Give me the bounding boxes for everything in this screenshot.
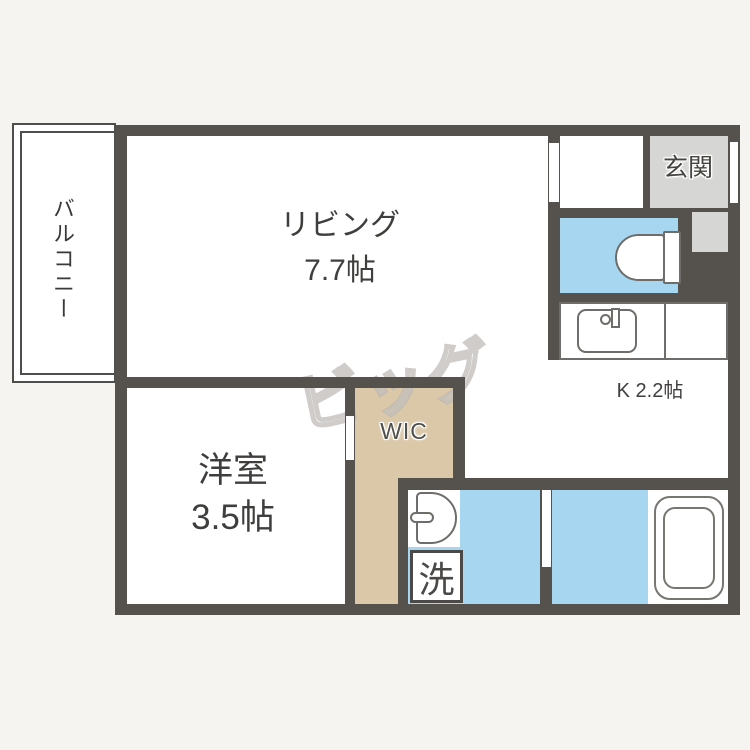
living-room-name: リビング bbox=[240, 203, 440, 248]
laundry-label: 洗 bbox=[418, 551, 454, 603]
wall-sanitary-top bbox=[398, 478, 740, 490]
door-living-hall bbox=[549, 143, 559, 202]
kitchen-faucet-icon bbox=[600, 314, 611, 325]
wall-bottom bbox=[115, 604, 740, 615]
bathroom-floor bbox=[548, 484, 648, 606]
western-room-size: 3.5帖 bbox=[133, 494, 333, 541]
door-wic bbox=[346, 416, 354, 460]
kitchen-label: K 2.2帖 bbox=[590, 374, 710, 403]
door-entry bbox=[730, 142, 738, 203]
floorplan: ビッグ 洗 バルコニー リビング 7.7帖 洋室 3.5帖 bbox=[0, 0, 750, 750]
wall-top bbox=[115, 125, 740, 136]
living-room-label: リビング 7.7帖 bbox=[240, 203, 440, 293]
wall-wic-right bbox=[453, 377, 465, 488]
wic-floor-lower bbox=[355, 478, 398, 606]
wall-sanitary-left bbox=[398, 478, 408, 615]
bathtub-inner bbox=[663, 507, 715, 589]
western-room-label: 洋室 3.5帖 bbox=[133, 447, 333, 542]
washing-machine-box: 洗 bbox=[410, 550, 463, 603]
wall-living-western-divider bbox=[115, 377, 465, 388]
toilet-icon bbox=[615, 234, 665, 281]
kitchen-faucet-base-icon bbox=[611, 308, 620, 328]
kitchen-counter-divider bbox=[664, 302, 666, 360]
wic-label: WIC bbox=[355, 418, 453, 445]
wall-left bbox=[115, 125, 127, 615]
entrance-step bbox=[692, 212, 728, 252]
washbasin-faucet-icon bbox=[410, 512, 434, 523]
living-room-size: 7.7帖 bbox=[240, 248, 440, 293]
entrance-label: 玄関 bbox=[648, 148, 728, 184]
western-room-name: 洋室 bbox=[133, 447, 333, 494]
balcony-label: バルコニー bbox=[46, 184, 78, 334]
toilet-tank-icon bbox=[663, 231, 681, 284]
door-bathroom bbox=[542, 490, 551, 567]
